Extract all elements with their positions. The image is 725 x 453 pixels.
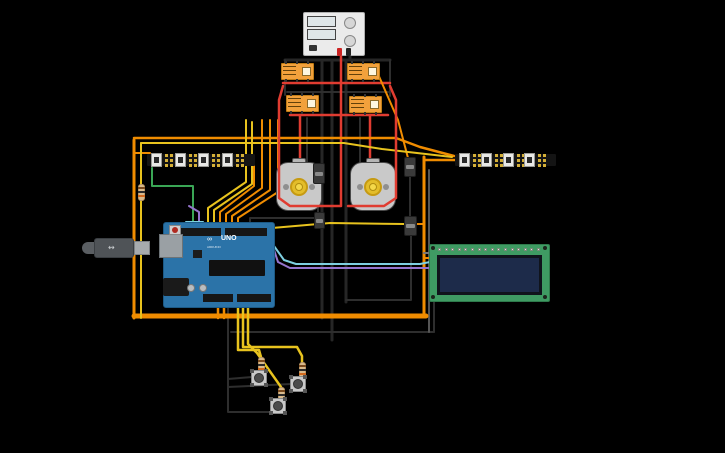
wire-red-loop-left[interactable] [279,86,341,206]
wire-red-loop-right[interactable] [348,86,396,206]
wire-layer [0,0,725,453]
circuit-canvas: ∞ARDUINOUNO↭ [0,0,725,453]
